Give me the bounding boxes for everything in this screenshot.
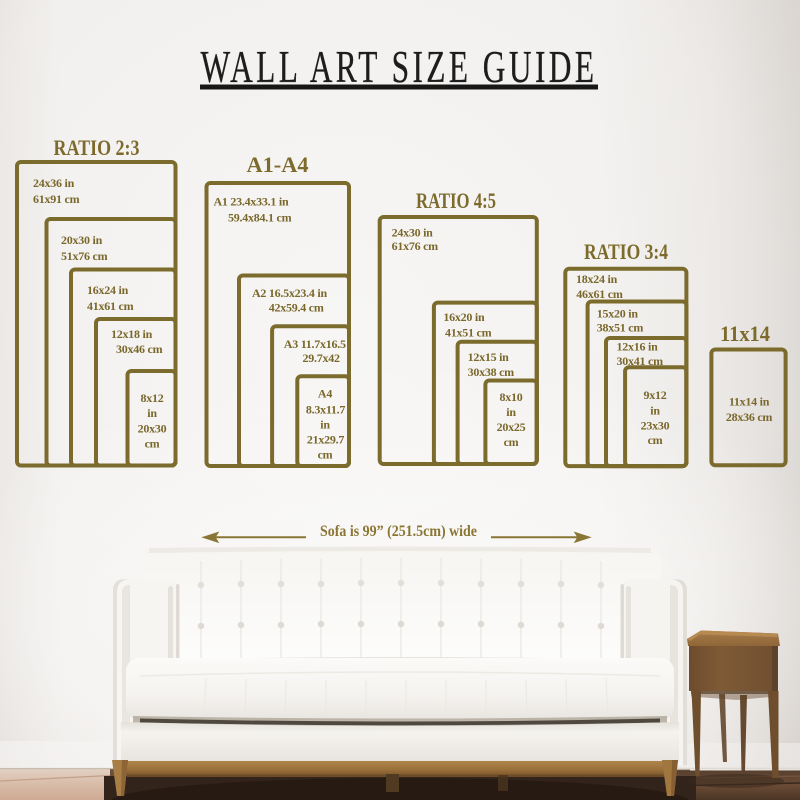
svg-text:24x36 in: 24x36 in [33,176,75,190]
svg-text:11x14: 11x14 [720,321,770,346]
svg-text:23x30: 23x30 [641,418,670,432]
svg-text:12x16 in: 12x16 in [617,340,659,354]
svg-text:A3 11.7x16.5: A3 11.7x16.5 [284,337,346,351]
svg-text:A4: A4 [318,387,332,401]
svg-text:Sofa is 99” (251.5cm) wide: Sofa is 99” (251.5cm) wide [320,523,477,540]
svg-text:9x12: 9x12 [644,388,667,402]
svg-text:cm: cm [504,435,519,449]
svg-text:A1 23.4x33.1 in: A1 23.4x33.1 in [214,195,290,209]
svg-text:in: in [506,405,516,419]
svg-text:cm: cm [648,433,663,447]
svg-text:in: in [147,406,157,420]
svg-text:24x30 in: 24x30 in [392,225,434,239]
svg-text:38x51 cm: 38x51 cm [597,320,644,334]
svg-text:16x24 in: 16x24 in [87,283,129,297]
svg-text:16x20 in: 16x20 in [443,310,485,324]
svg-text:A2 16.5x23.4 in: A2 16.5x23.4 in [252,286,328,300]
svg-text:41x61 cm: 41x61 cm [87,299,134,313]
svg-text:cm: cm [318,448,333,462]
svg-text:20x30: 20x30 [138,422,167,436]
svg-text:8.3x11.7: 8.3x11.7 [306,402,346,416]
svg-text:cm: cm [145,437,160,451]
svg-text:21x29.7: 21x29.7 [307,432,345,446]
svg-text:42x59.4 cm: 42x59.4 cm [269,300,324,314]
svg-text:RATIO 3:4: RATIO 3:4 [584,239,668,264]
svg-text:59.4x84.1 cm: 59.4x84.1 cm [228,210,292,224]
svg-text:51x76 cm: 51x76 cm [61,249,108,263]
svg-text:8x10: 8x10 [500,390,523,404]
svg-text:46x61 cm: 46x61 cm [576,287,623,301]
svg-text:30x46 cm: 30x46 cm [116,342,163,356]
svg-text:12x15 in: 12x15 in [468,350,510,364]
svg-text:61x91 cm: 61x91 cm [33,192,80,206]
svg-text:20x25: 20x25 [497,420,526,434]
svg-text:30x38 cm: 30x38 cm [468,365,515,379]
svg-text:RATIO 4:5: RATIO 4:5 [416,188,496,213]
svg-text:8x12: 8x12 [141,391,164,405]
svg-text:61x76 cm: 61x76 cm [392,239,439,253]
svg-text:29.7x42: 29.7x42 [303,351,341,365]
svg-text:20x30 in: 20x30 in [61,233,103,247]
svg-text:15x20 in: 15x20 in [597,306,639,320]
svg-text:in: in [320,417,330,431]
svg-text:41x51 cm: 41x51 cm [445,325,492,339]
svg-text:18x24 in: 18x24 in [576,272,618,286]
svg-text:11x14 in: 11x14 in [729,394,770,408]
svg-text:12x18 in: 12x18 in [111,327,153,341]
svg-text:A1-A4: A1-A4 [247,152,309,177]
svg-text:WALL ART SIZE GUIDE: WALL ART SIZE GUIDE [201,41,598,92]
svg-text:RATIO 2:3: RATIO 2:3 [54,135,140,160]
svg-text:28x36 cm: 28x36 cm [726,410,773,424]
svg-text:in: in [650,403,660,417]
